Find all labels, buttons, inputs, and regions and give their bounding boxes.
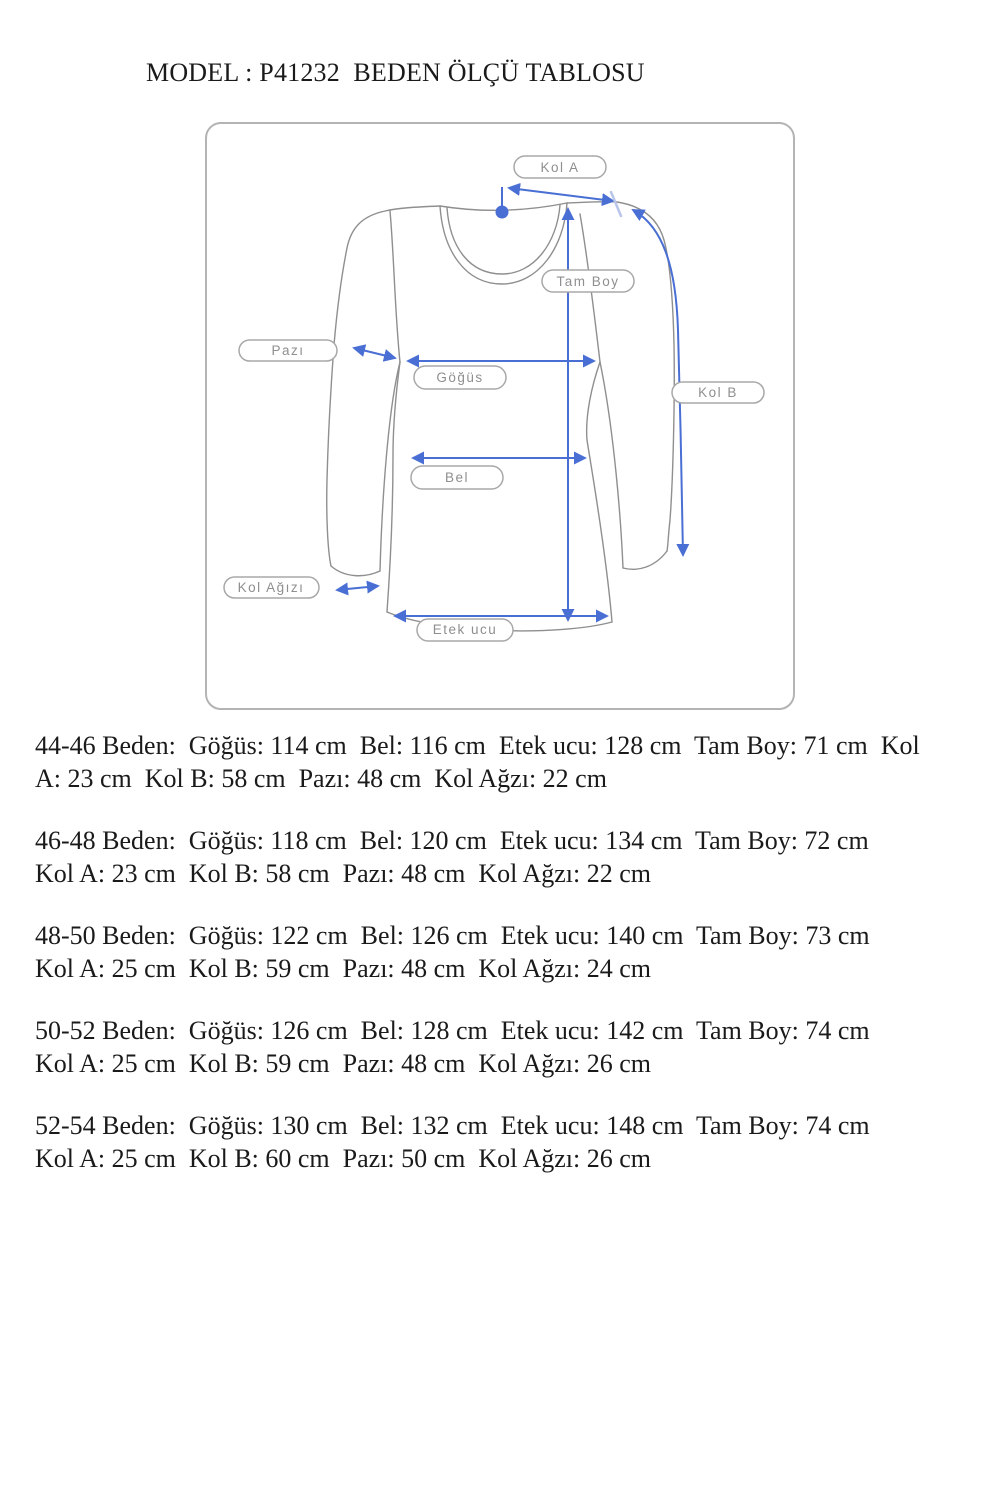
size-chart-page: MODEL : P41232 BEDEN ÖLÇÜ TABLOSU xyxy=(0,0,1000,1500)
size-row-line: Kol A: 25 cm Kol B: 59 cm Pazı: 48 cm Ko… xyxy=(35,952,870,985)
size-row-line: 46-48 Beden: Göğüs: 118 cm Bel: 120 cm E… xyxy=(35,824,869,857)
size-row-line: 44-46 Beden: Göğüs: 114 cm Bel: 116 cm E… xyxy=(35,729,920,762)
svg-text:Göğüs: Göğüs xyxy=(436,370,483,385)
size-row-48-50: 48-50 Beden: Göğüs: 122 cm Bel: 126 cm E… xyxy=(35,919,870,985)
size-row-line: Kol A: 25 cm Kol B: 60 cm Pazı: 50 cm Ko… xyxy=(35,1142,870,1175)
measurement-arrows xyxy=(337,187,683,620)
size-row-46-48: 46-48 Beden: Göğüs: 118 cm Bel: 120 cm E… xyxy=(35,824,869,890)
label-kol-b: Kol B xyxy=(672,382,764,403)
size-row-line: Kol A: 23 cm Kol B: 58 cm Pazı: 48 cm Ko… xyxy=(35,857,869,890)
label-pazi: Pazı xyxy=(239,340,337,361)
shoulder-tick xyxy=(611,192,621,216)
size-row-line: 52-54 Beden: Göğüs: 130 cm Bel: 132 cm E… xyxy=(35,1109,870,1142)
label-bel: Bel xyxy=(411,466,503,489)
size-row-line: A: 23 cm Kol B: 58 cm Pazı: 48 cm Kol Ağ… xyxy=(35,762,920,795)
page-title: MODEL : P41232 BEDEN ÖLÇÜ TABLOSU xyxy=(146,58,645,88)
size-row-line: 48-50 Beden: Göğüs: 122 cm Bel: 126 cm E… xyxy=(35,919,870,952)
size-row-52-54: 52-54 Beden: Göğüs: 130 cm Bel: 132 cm E… xyxy=(35,1109,870,1175)
kol-agzi-arrow xyxy=(337,586,378,590)
size-row-44-46: 44-46 Beden: Göğüs: 114 cm Bel: 116 cm E… xyxy=(35,729,920,795)
svg-text:Kol B: Kol B xyxy=(698,385,738,400)
svg-text:Kol A: Kol A xyxy=(540,160,579,175)
size-row-line: Kol A: 25 cm Kol B: 59 cm Pazı: 48 cm Ko… xyxy=(35,1047,870,1080)
pazi-arrow xyxy=(354,348,395,358)
measurement-diagram: Kol A Tam Boy Pazı Göğüs Kol B Bel xyxy=(205,122,795,710)
garment-outline xyxy=(327,202,675,631)
svg-text:Kol Ağızı: Kol Ağızı xyxy=(238,580,305,595)
label-tam-boy: Tam Boy xyxy=(542,270,634,292)
size-row-line: 50-52 Beden: Göğüs: 126 cm Bel: 128 cm E… xyxy=(35,1014,870,1047)
svg-text:Pazı: Pazı xyxy=(271,343,304,358)
label-kol-agzi: Kol Ağızı xyxy=(224,577,319,598)
label-kol-a: Kol A xyxy=(514,156,606,178)
svg-text:Bel: Bel xyxy=(445,470,469,485)
kol-b-arrow xyxy=(633,210,683,555)
svg-text:Etek ucu: Etek ucu xyxy=(433,622,498,637)
size-row-50-52: 50-52 Beden: Göğüs: 126 cm Bel: 128 cm E… xyxy=(35,1014,870,1080)
svg-text:Tam Boy: Tam Boy xyxy=(556,274,619,289)
garment-diagram-svg: Kol A Tam Boy Pazı Göğüs Kol B Bel xyxy=(207,124,793,708)
label-gogus: Göğüs xyxy=(414,366,506,389)
kol-a-arrow xyxy=(509,188,613,201)
label-etek-ucu: Etek ucu xyxy=(417,619,513,641)
